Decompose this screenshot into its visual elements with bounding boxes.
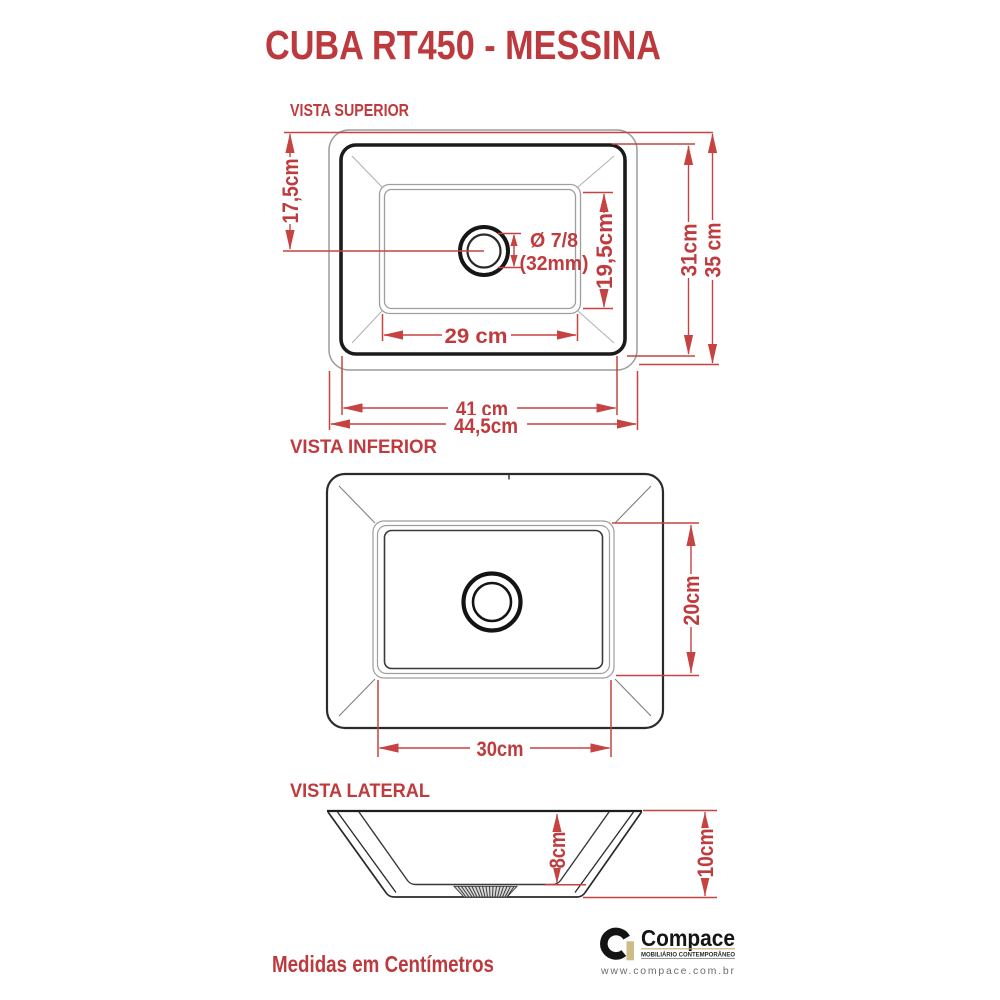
svg-text:10cm: 10cm <box>693 829 718 878</box>
svg-text:Ø 7/8: Ø 7/8 <box>530 229 578 252</box>
svg-text:VISTA LATERAL: VISTA LATERAL <box>290 781 430 802</box>
svg-text:VISTA INFERIOR: VISTA INFERIOR <box>290 437 437 458</box>
svg-text:(32mm): (32mm) <box>520 252 589 275</box>
svg-text:35 cm: 35 cm <box>701 223 726 278</box>
svg-text:MOBILIÁRIO CONTEMPORÂNEO: MOBILIÁRIO CONTEMPORÂNEO <box>641 952 735 959</box>
svg-text:30cm: 30cm <box>477 738 524 761</box>
svg-text:8cm: 8cm <box>545 832 570 869</box>
svg-text:31cm: 31cm <box>677 224 702 277</box>
svg-text:CUBA RT450 - MESSINA: CUBA RT450 - MESSINA <box>265 22 661 68</box>
svg-text:44,5cm: 44,5cm <box>454 415 518 438</box>
svg-text:29 cm: 29 cm <box>445 325 508 348</box>
svg-text:Medidas em Centímetros: Medidas em Centímetros <box>272 951 494 977</box>
svg-text:www.compace.com.br: www.compace.com.br <box>600 965 735 977</box>
svg-text:17,5cm: 17,5cm <box>278 159 303 224</box>
svg-text:20cm: 20cm <box>679 576 704 626</box>
svg-text:Compace: Compace <box>641 925 735 951</box>
svg-text:19,5cm: 19,5cm <box>592 213 617 289</box>
svg-text:VISTA SUPERIOR: VISTA SUPERIOR <box>290 100 409 120</box>
